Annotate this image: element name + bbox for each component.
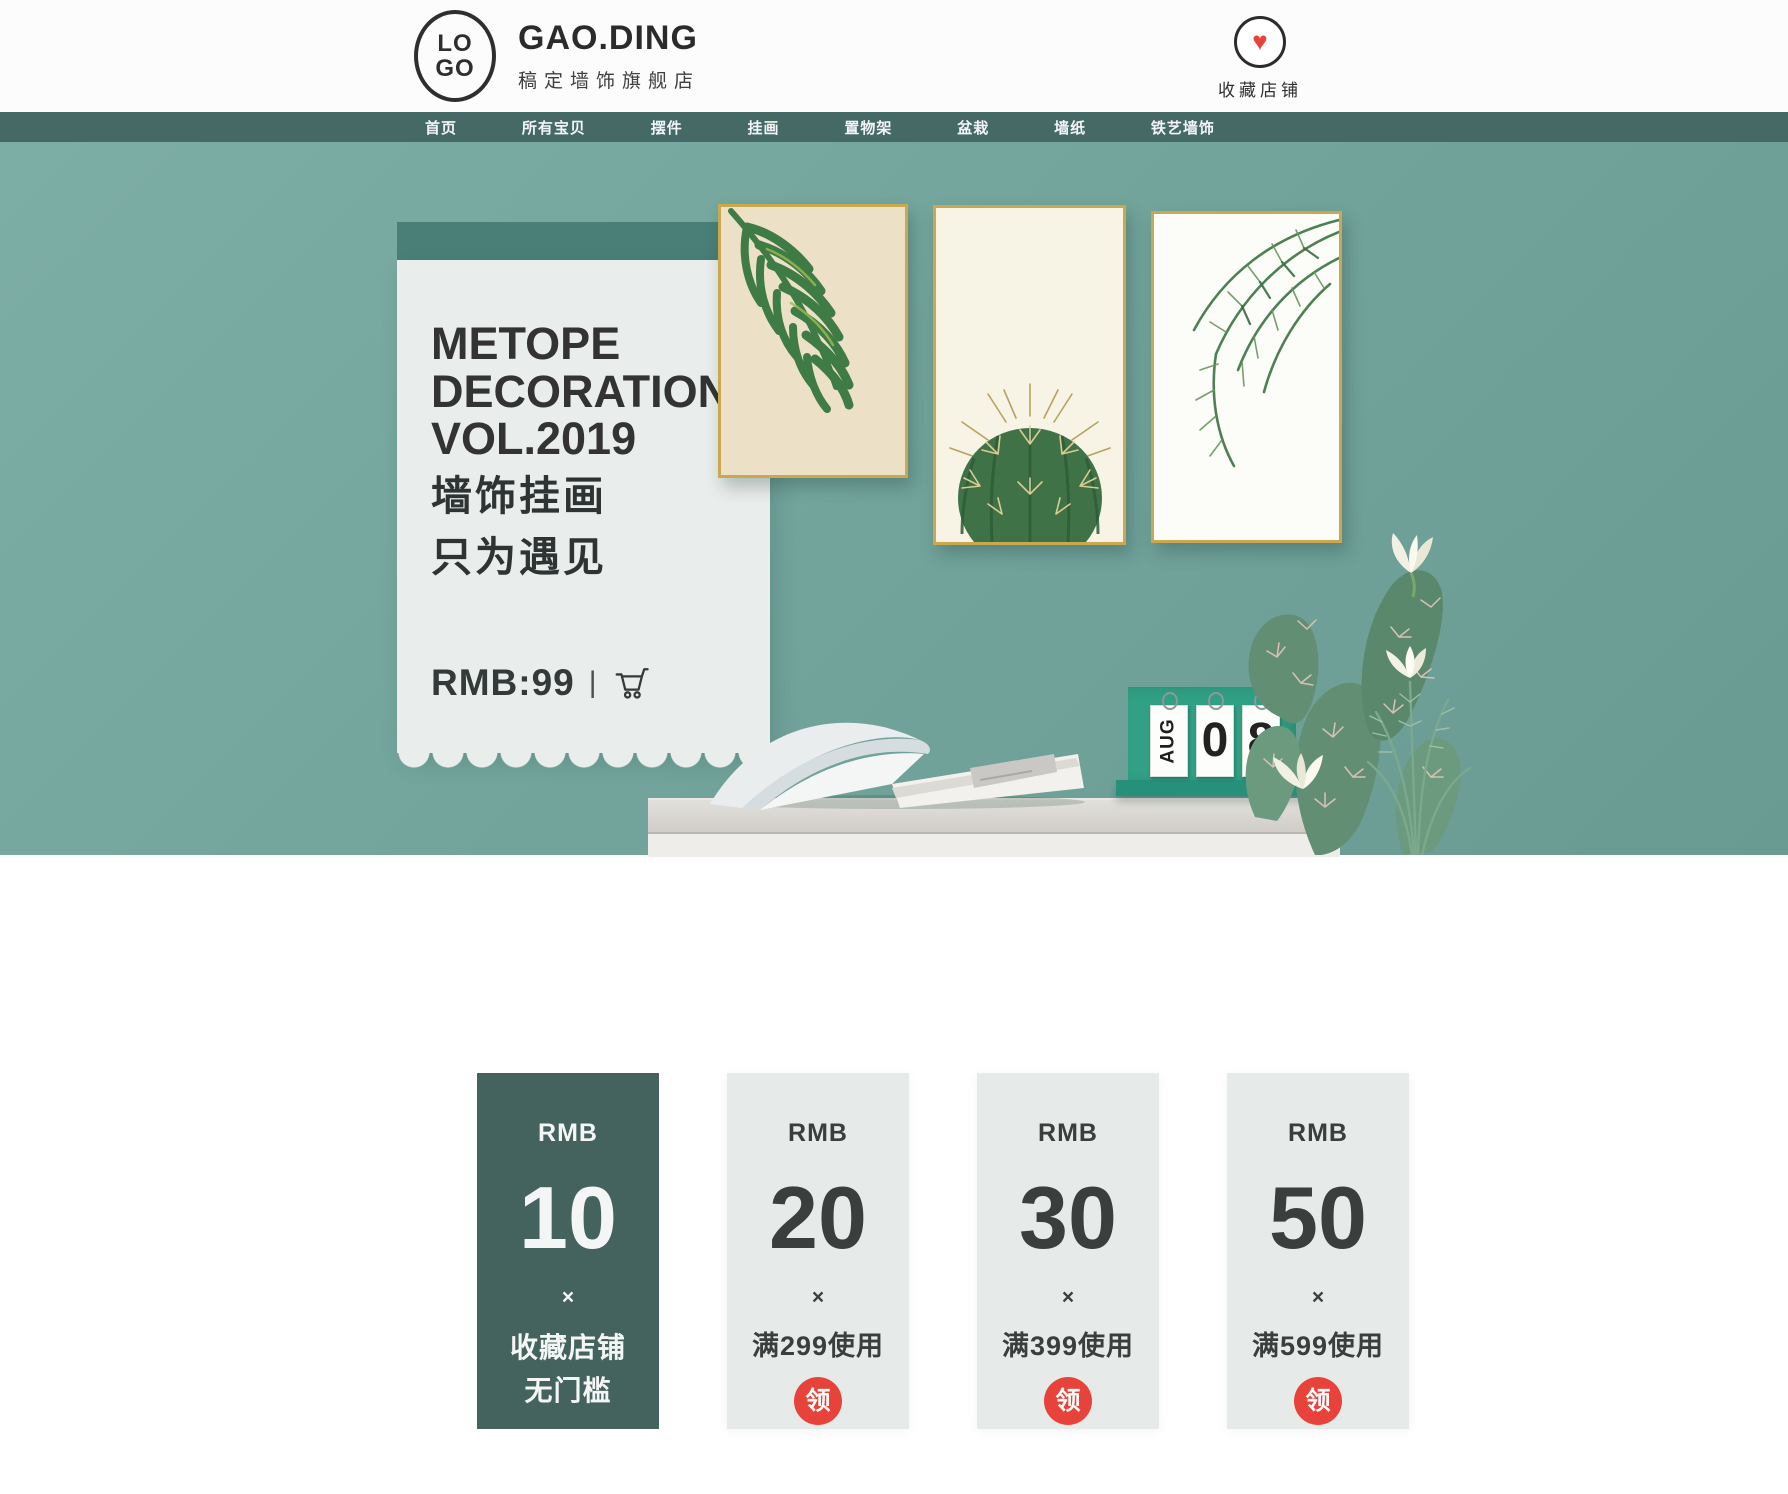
coupon-condition: 满599使用 <box>1227 1324 1409 1363</box>
nav-item-ornaments[interactable]: 摆件 <box>651 117 683 138</box>
coupon-amount: 30 <box>977 1174 1159 1262</box>
promo-title-line3: VOL.2019 <box>431 415 730 463</box>
coupon-card-30[interactable]: RMB 30 × 满399使用 领 <box>977 1073 1159 1429</box>
main-nav: 首页 所有宝贝 摆件 挂画 置物架 盆栽 墙纸 铁艺墙饰 <box>0 112 1788 142</box>
hero-banner: METOPE DECORATION VOL.2019 墙饰挂画 只为遇见 RMB… <box>0 142 1788 855</box>
wall-art-frame-leaf <box>718 204 908 478</box>
coupon-separator: × <box>477 1286 659 1310</box>
coupon-amount: 50 <box>1227 1174 1409 1262</box>
coupon-currency: RMB <box>977 1119 1159 1148</box>
wall-art-frame-cactus <box>933 205 1126 545</box>
calendar-month: AUG <box>1158 718 1180 763</box>
open-book <box>680 692 1110 817</box>
nav-item-paintings[interactable]: 挂画 <box>748 117 780 138</box>
promo-subtitle-line2: 只为遇见 <box>431 527 607 588</box>
nav-item-home[interactable]: 首页 <box>425 117 457 138</box>
brand-title: GAO.DING <box>518 19 700 58</box>
coupon-amount: 20 <box>727 1174 909 1262</box>
nav-item-plants[interactable]: 盆栽 <box>957 117 989 138</box>
logo-text-top: LO <box>437 31 472 56</box>
coupon-separator: × <box>977 1286 1159 1310</box>
promo-card: METOPE DECORATION VOL.2019 墙饰挂画 只为遇见 RMB… <box>397 222 770 753</box>
favorite-circle[interactable]: ♥ <box>1234 16 1286 68</box>
nav-item-all-items[interactable]: 所有宝贝 <box>522 117 586 138</box>
coupon-card-20[interactable]: RMB 20 × 满299使用 领 <box>727 1073 909 1429</box>
claim-coupon-button[interactable]: 领 <box>1294 1377 1342 1425</box>
promo-title-line1: METOPE <box>431 320 730 368</box>
grass-plant <box>1352 642 1482 860</box>
coupon-currency: RMB <box>1227 1119 1409 1148</box>
promo-card-body: METOPE DECORATION VOL.2019 墙饰挂画 只为遇见 RMB… <box>397 260 770 753</box>
main-nav-items: 首页 所有宝贝 摆件 挂画 置物架 盆栽 墙纸 铁艺墙饰 <box>425 112 1215 142</box>
promo-price: RMB:99 <box>431 662 575 704</box>
calendar-month-card: AUG <box>1150 705 1188 777</box>
coupon-note-line1: 收藏店铺 <box>477 1326 659 1369</box>
coupon-separator: × <box>1227 1286 1409 1310</box>
claim-coupon-button[interactable]: 领 <box>794 1377 842 1425</box>
logo-text-bottom: GO <box>435 56 474 81</box>
promo-title-line2: DECORATION <box>431 368 730 416</box>
coupon-condition: 满299使用 <box>727 1324 909 1363</box>
coupon-currency: RMB <box>477 1119 659 1148</box>
heart-icon: ♥ <box>1252 28 1267 54</box>
calendar-ring-icon <box>1162 692 1178 710</box>
favorite-store-label: 收藏店铺 <box>1206 76 1314 101</box>
claim-coupon-button[interactable]: 领 <box>1044 1377 1092 1425</box>
nav-item-wallpaper[interactable]: 墙纸 <box>1054 117 1086 138</box>
coupon-card-10[interactable]: RMB 10 × 收藏店铺 无门槛 <box>477 1073 659 1429</box>
coupon-amount: 10 <box>477 1174 659 1262</box>
promo-card-header <box>397 222 770 260</box>
brand-block: GAO.DING 稿定墙饰旗舰店 <box>518 19 700 93</box>
nav-item-shelves[interactable]: 置物架 <box>844 117 892 138</box>
store-header: LO GO GAO.DING 稿定墙饰旗舰店 ♥ 收藏店铺 <box>0 0 1788 112</box>
coupon-section: RMB 10 × 收藏店铺 无门槛 RMB 20 × 满299使用 领 RMB … <box>477 1073 1409 1429</box>
store-logo[interactable]: LO GO GAO.DING 稿定墙饰旗舰店 <box>414 10 700 102</box>
nav-item-iron-decor[interactable]: 铁艺墙饰 <box>1151 117 1215 138</box>
coupon-separator: × <box>727 1286 909 1310</box>
shop-homepage: LO GO GAO.DING 稿定墙饰旗舰店 ♥ 收藏店铺 首页 所有宝贝 摆件… <box>0 0 1788 1494</box>
cactus-ball-art <box>936 208 1123 542</box>
favorite-store-button[interactable]: ♥ 收藏店铺 <box>1206 16 1314 101</box>
palm-leaf-art <box>721 207 905 475</box>
promo-subtitle: 墙饰挂画 只为遇见 <box>431 466 607 587</box>
coupon-currency: RMB <box>727 1119 909 1148</box>
logo-circle-icon: LO GO <box>414 10 496 102</box>
coupon-note-line2: 无门槛 <box>477 1369 659 1412</box>
promo-title: METOPE DECORATION VOL.2019 <box>431 320 730 463</box>
promo-price-row: RMB:99 | <box>431 662 649 704</box>
coupon-condition: 满399使用 <box>977 1324 1159 1363</box>
coupon-card-50[interactable]: RMB 50 × 满599使用 领 <box>1227 1073 1409 1429</box>
price-divider: | <box>589 666 597 700</box>
promo-subtitle-line1: 墙饰挂画 <box>431 466 607 527</box>
brand-subtitle: 稿定墙饰旗舰店 <box>518 66 700 93</box>
coupon-note: 收藏店铺 无门槛 <box>477 1326 659 1413</box>
shopping-cart-icon[interactable] <box>611 665 649 701</box>
